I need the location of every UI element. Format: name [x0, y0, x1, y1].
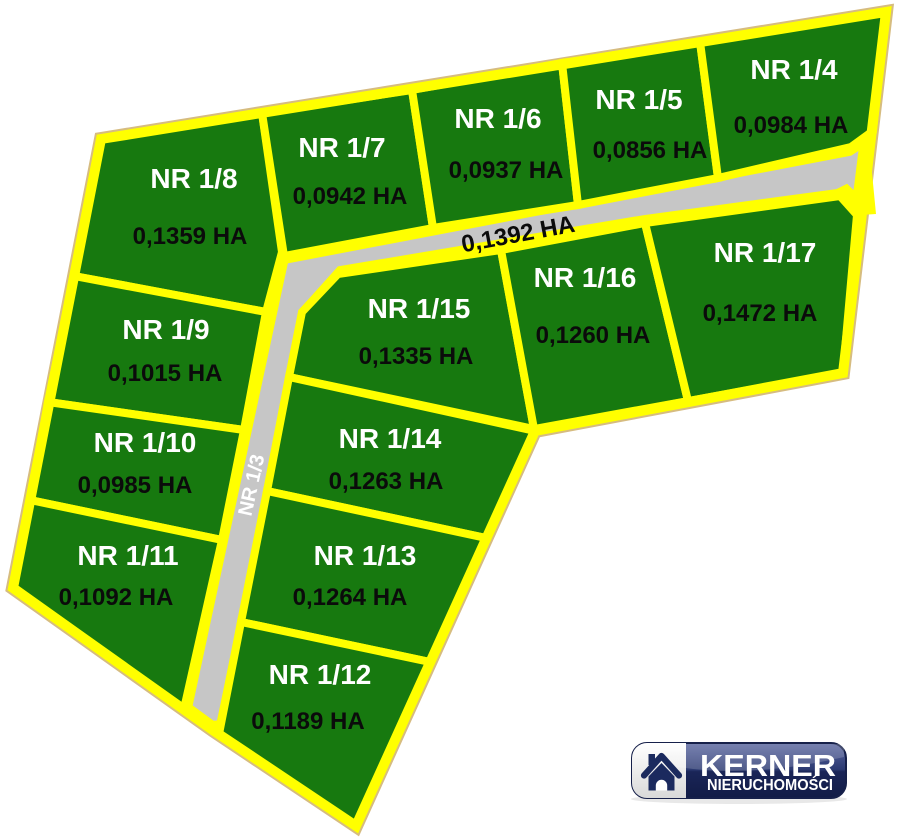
svg-text:NR 1/11: NR 1/11 — [77, 540, 178, 571]
svg-text:NR 1/7: NR 1/7 — [298, 132, 385, 163]
svg-text:NR 1/5: NR 1/5 — [595, 84, 682, 115]
svg-text:0,0942 HA: 0,0942 HA — [293, 183, 408, 210]
svg-text:NR 1/14: NR 1/14 — [339, 423, 442, 454]
svg-text:0,1359 HA: 0,1359 HA — [133, 223, 248, 250]
svg-text:NR 1/8: NR 1/8 — [150, 163, 237, 194]
svg-text:NR 1/16: NR 1/16 — [534, 262, 637, 293]
svg-text:NR 1/4: NR 1/4 — [750, 54, 838, 85]
svg-text:0,1189 HA: 0,1189 HA — [251, 708, 364, 735]
svg-text:0,0984 HA: 0,0984 HA — [734, 112, 849, 139]
svg-text:NR 1/9: NR 1/9 — [122, 314, 209, 345]
svg-text:0,1264 HA: 0,1264 HA — [293, 584, 408, 611]
svg-text:0,1335 HA: 0,1335 HA — [359, 343, 474, 370]
svg-text:0,1472 HA: 0,1472 HA — [703, 300, 818, 327]
svg-text:NR 1/17: NR 1/17 — [714, 237, 817, 268]
svg-text:0,1263 HA: 0,1263 HA — [329, 468, 444, 495]
svg-text:NR 1/10: NR 1/10 — [94, 427, 197, 458]
svg-text:0,0985 HA: 0,0985 HA — [78, 472, 193, 499]
svg-text:0,1015 HA: 0,1015 HA — [108, 360, 223, 387]
svg-text:0,0856 HA: 0,0856 HA — [593, 137, 708, 164]
svg-text:NR 1/12: NR 1/12 — [269, 659, 372, 690]
svg-text:NR 1/15: NR 1/15 — [368, 293, 471, 324]
svg-text:NR 1/6: NR 1/6 — [454, 103, 541, 134]
svg-text:0,1092 HA: 0,1092 HA — [59, 584, 174, 611]
svg-text:NR 1/13: NR 1/13 — [314, 540, 417, 571]
svg-text:NIERUCHOMOŚCI: NIERUCHOMOŚCI — [707, 776, 833, 794]
svg-text:0,1260 HA: 0,1260 HA — [536, 322, 651, 349]
svg-text:0,0937 HA: 0,0937 HA — [449, 157, 564, 184]
